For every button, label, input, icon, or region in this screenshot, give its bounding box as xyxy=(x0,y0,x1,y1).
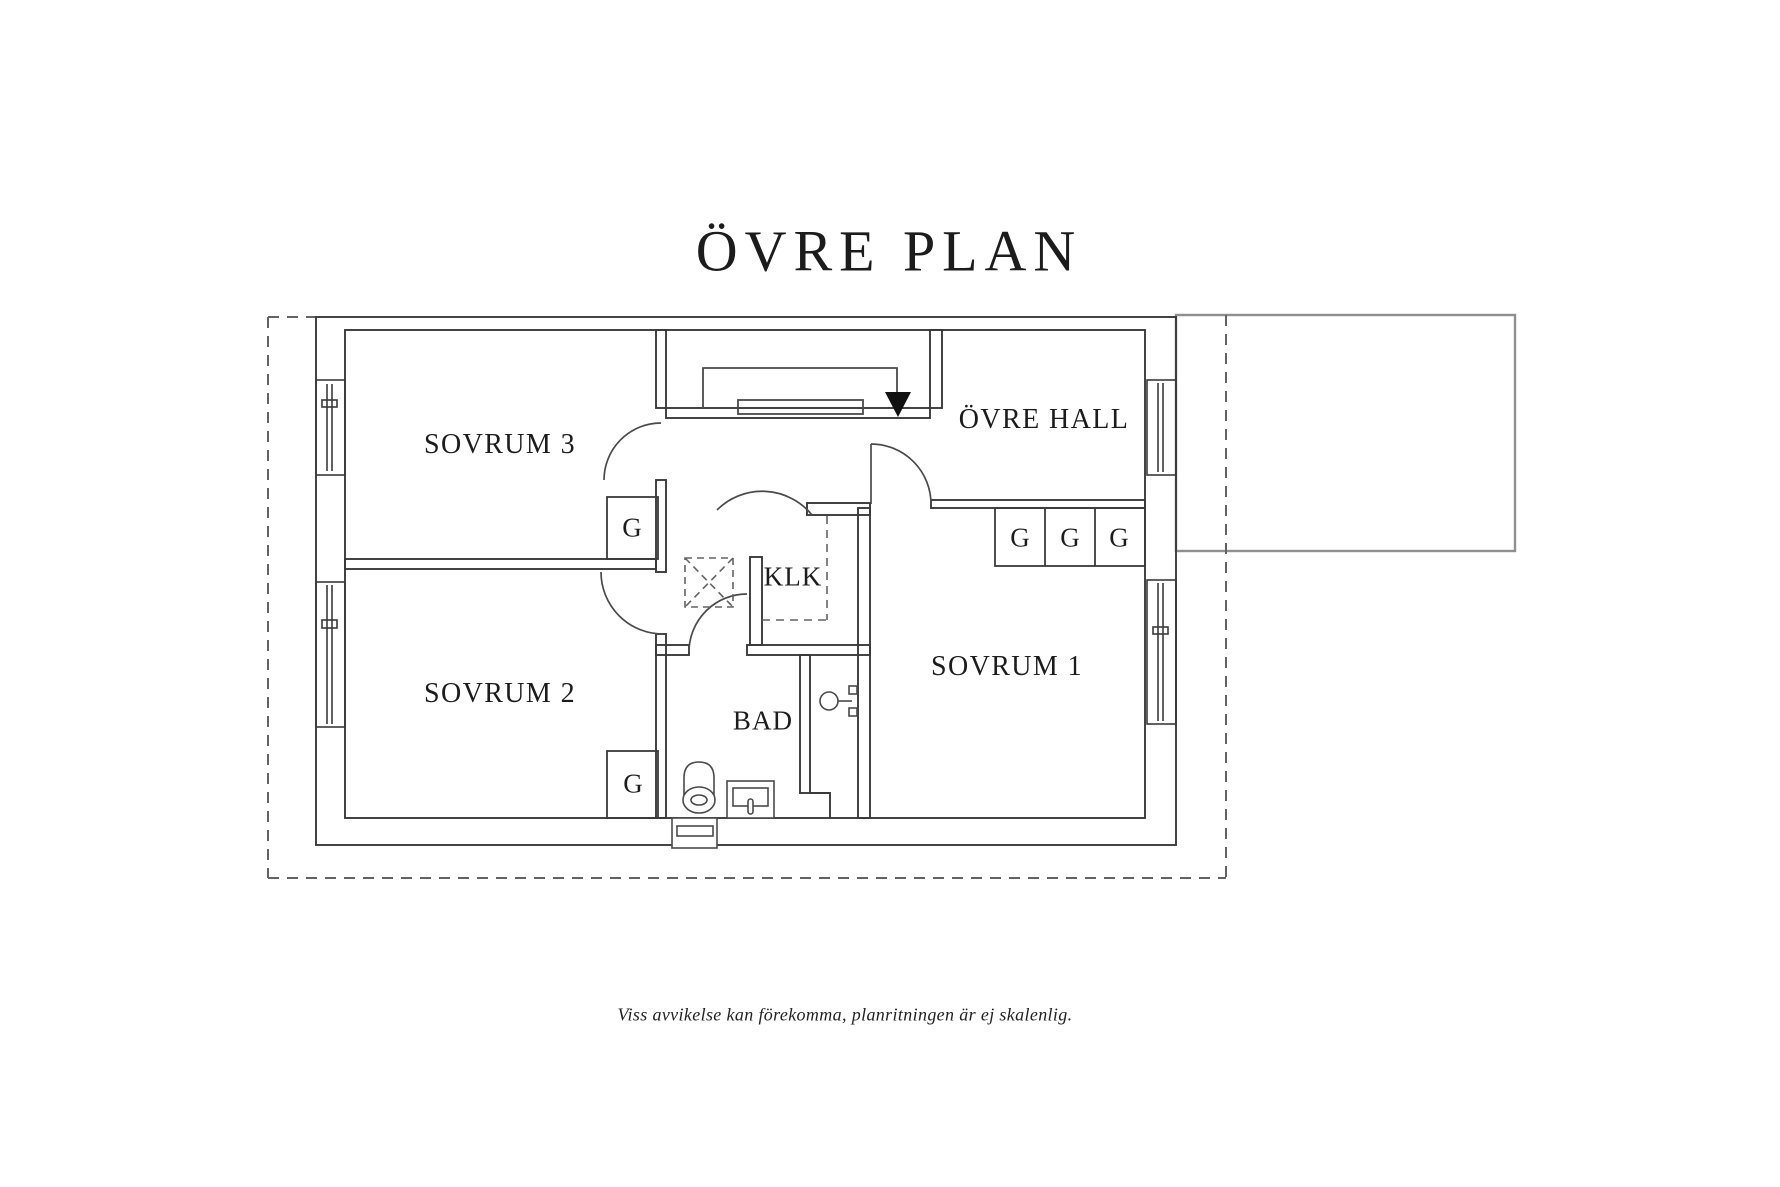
room-label-sovrum2: SOVRUM 2 xyxy=(424,678,576,710)
door-arc-sovrum1 xyxy=(871,444,931,504)
floor-plan-page: ÖVRE PLAN SOVRUM 3 SOVRUM 2 SOVRUM 1 ÖVR… xyxy=(0,0,1780,1187)
wall-bad-step xyxy=(810,793,830,818)
door-arc-sovrum3 xyxy=(604,423,661,480)
wall-sovrum3-sovrum2 xyxy=(345,559,656,569)
wardrobe-label: G xyxy=(622,513,642,544)
room-label-sovrum3: SOVRUM 3 xyxy=(424,429,576,461)
door-arc-klk xyxy=(717,491,812,515)
wall-fixture-icon xyxy=(820,686,857,716)
window-icon xyxy=(316,380,345,475)
sink-icon xyxy=(727,781,774,818)
staircase xyxy=(703,368,911,417)
wardrobe-label: G xyxy=(1060,523,1080,554)
wall-sovrum1-left xyxy=(858,508,870,818)
wardrobe-label: G xyxy=(623,769,643,800)
room-label-ovre-hall: ÖVRE HALL xyxy=(959,404,1129,436)
vent-shaft-icon xyxy=(672,818,717,848)
doors xyxy=(601,423,931,652)
wall-bad-top-left xyxy=(656,645,689,655)
wall-klk-left xyxy=(750,557,762,645)
stair-rail xyxy=(703,368,897,408)
door-arc-sovrum2 xyxy=(601,572,663,634)
exterior-wall-outer xyxy=(316,317,1176,845)
wardrobe-label: G xyxy=(1010,523,1030,554)
page-title: ÖVRE PLAN xyxy=(696,218,1082,285)
wall-bad-right xyxy=(800,655,810,793)
wall-stair-bottom xyxy=(666,408,930,418)
toilet-icon xyxy=(683,762,715,813)
door-arc-bad xyxy=(689,594,747,652)
stair-landing xyxy=(738,400,863,414)
wall-bad-top-right xyxy=(747,645,870,655)
walls xyxy=(316,317,1176,845)
wardrobe-label: G xyxy=(1109,523,1129,554)
stairs-down-arrow-icon xyxy=(885,392,911,417)
room-label-bad: BAD xyxy=(733,706,793,737)
room-label-sovrum1: SOVRUM 1 xyxy=(931,651,1083,683)
wall-stair-right xyxy=(930,330,942,408)
wall-sovrum3-stair xyxy=(656,330,666,408)
wall-klk-top xyxy=(807,503,870,515)
wall-ovrehall-sovrum1 xyxy=(931,500,1145,508)
window-icon xyxy=(316,582,345,727)
window-icon xyxy=(1147,380,1176,475)
skylight-hatch-icon xyxy=(685,558,733,607)
window-icon xyxy=(1147,580,1176,724)
disclaimer-text: Viss avvikelse kan förekomma, planritnin… xyxy=(617,1005,1072,1026)
room-label-klk: KLK xyxy=(764,562,823,593)
